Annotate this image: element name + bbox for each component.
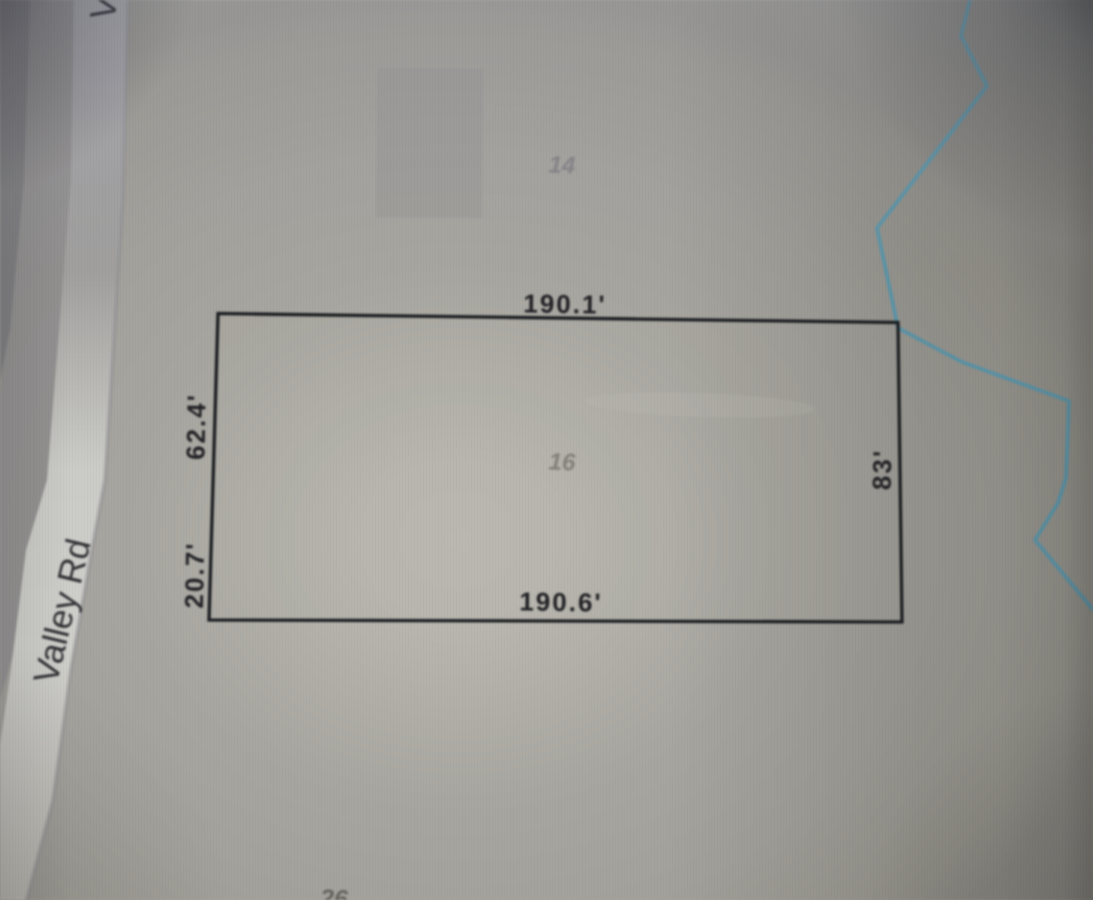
svg-text:190.6': 190.6' xyxy=(519,586,603,617)
svg-text:190.1': 190.1' xyxy=(523,288,607,319)
svg-text:20.7': 20.7' xyxy=(179,541,210,608)
svg-text:26: 26 xyxy=(319,884,350,900)
svg-text:62.4': 62.4' xyxy=(180,393,211,460)
svg-text:16: 16 xyxy=(548,449,576,477)
svg-text:14: 14 xyxy=(548,152,576,180)
svg-text:83': 83' xyxy=(867,449,898,491)
